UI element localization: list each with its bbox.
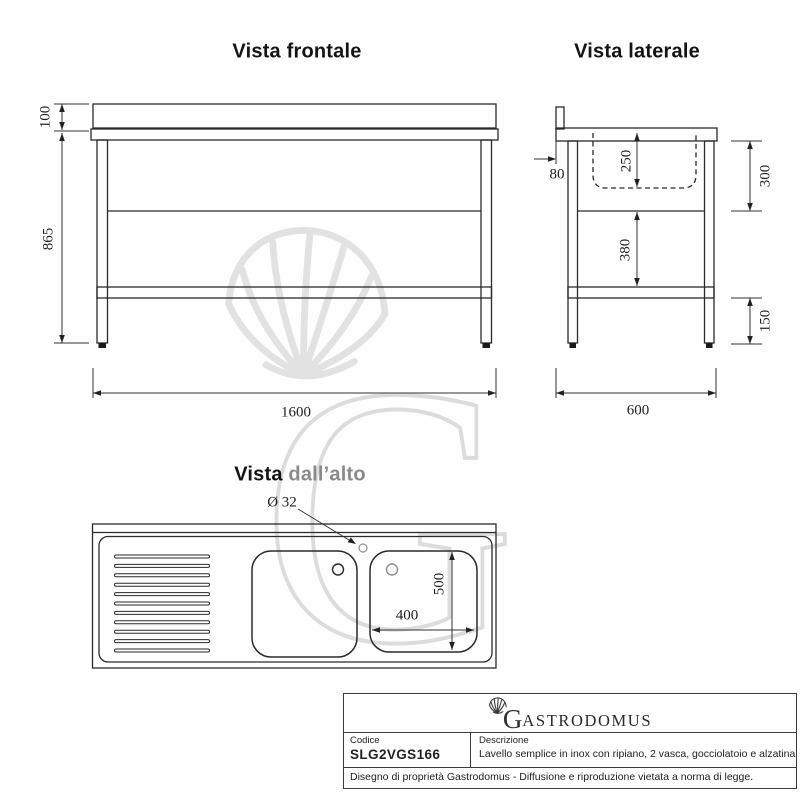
- dim-label-150: 150: [758, 310, 775, 333]
- drawing-canvas: G: [0, 0, 800, 800]
- side-undershelf: [568, 287, 714, 298]
- side-view-title: Vista laterale: [574, 41, 700, 64]
- dim-label-865: 865: [41, 228, 58, 251]
- side-left-foot: [570, 343, 577, 348]
- dim-label-500: 500: [432, 573, 449, 596]
- watermark-g-letter: G: [262, 311, 516, 721]
- description-cell: Descrizione Lavello semplice in inox con…: [471, 733, 796, 767]
- top-view-title-word2: dall’alto: [288, 464, 365, 486]
- title-block-info-row: Codice SLG2VGS166 Descrizione Lavello se…: [344, 733, 796, 768]
- top-view-title: Vista dall’alto: [234, 464, 366, 487]
- svg-text:G: G: [262, 311, 516, 721]
- dim-label-600: 600: [627, 403, 650, 420]
- copyright-notice: Disegno di proprietà Gastrodomus - Diffu…: [344, 768, 796, 787]
- front-backsplash: [93, 104, 496, 128]
- drainboard-ribs: [115, 555, 210, 652]
- logo-text: ASTRODOMUS: [522, 712, 652, 729]
- side-backsplash: [556, 107, 564, 129]
- description-value: Lavello semplice in inox con ripiano, 2 …: [479, 748, 796, 760]
- dim-label-diameter-32: Ø 32: [267, 495, 297, 512]
- top-view-title-word1: Vista: [234, 464, 288, 486]
- front-view-title: Vista frontale: [232, 41, 361, 64]
- technical-drawing-page: G: [0, 0, 800, 800]
- dim-label-300: 300: [758, 165, 775, 188]
- side-right-leg: [705, 141, 715, 343]
- dim-label-250: 250: [619, 150, 636, 173]
- dim-label-100: 100: [38, 106, 55, 129]
- side-right-foot: [706, 343, 713, 348]
- code-label: Codice: [350, 735, 470, 746]
- front-left-leg: [97, 140, 108, 343]
- front-left-foot: [99, 343, 107, 348]
- code-cell: Codice SLG2VGS166: [344, 733, 471, 767]
- front-worktop: [91, 129, 498, 140]
- front-undershelf: [97, 287, 492, 298]
- logo-letter-g: G: [503, 709, 523, 729]
- side-left-leg: [568, 141, 578, 343]
- dim-label-380: 380: [618, 239, 635, 262]
- description-label: Descrizione: [479, 735, 796, 746]
- code-value: SLG2VGS166: [350, 747, 470, 762]
- title-block: GASTRODOMUS Codice SLG2VGS166 Descrizion…: [343, 693, 797, 789]
- title-block-logo-row: GASTRODOMUS: [344, 694, 796, 733]
- dim-label-400: 400: [396, 608, 419, 625]
- dim-label-80: 80: [550, 167, 565, 184]
- front-right-foot: [483, 343, 491, 348]
- gastrodomus-logo: GASTRODOMUS: [488, 697, 652, 729]
- dim-label-1600: 1600: [281, 405, 311, 422]
